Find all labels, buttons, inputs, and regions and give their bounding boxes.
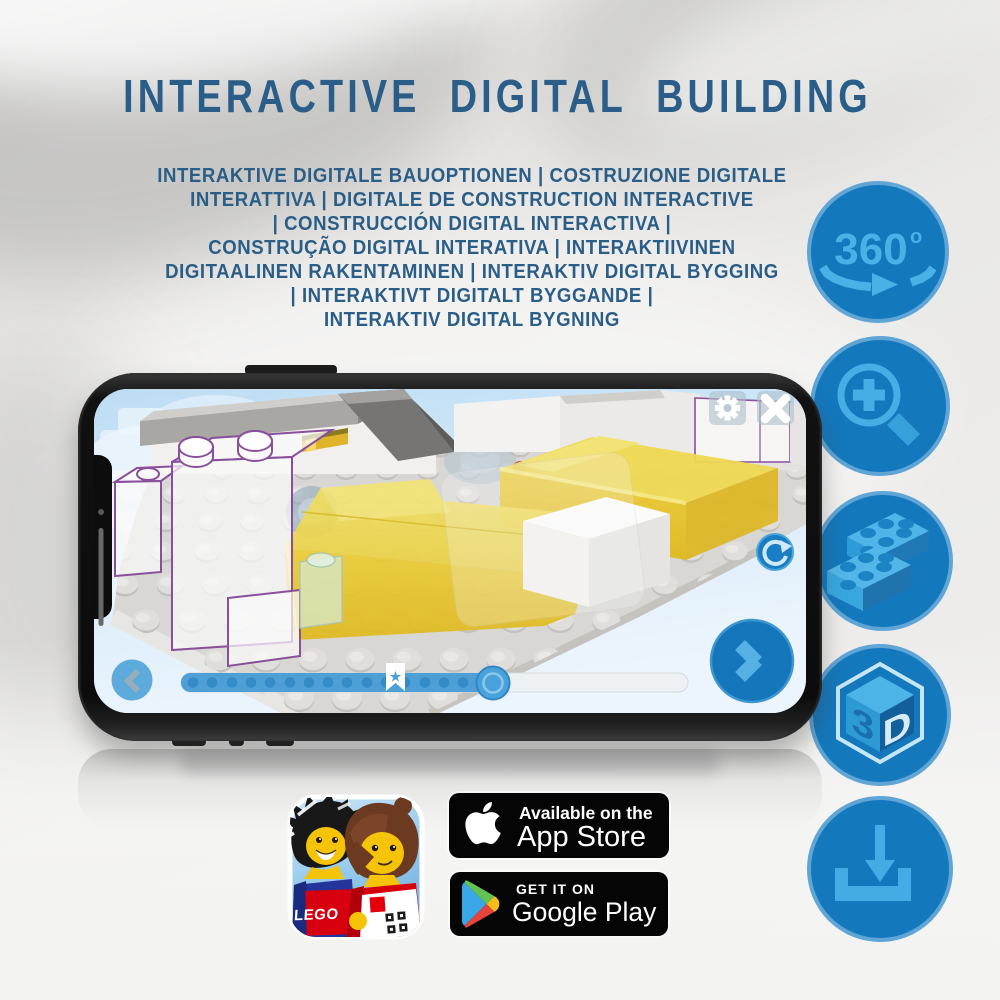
svg-text:GET IT ON: GET IT ON: [516, 881, 595, 897]
svg-text:★: ★: [390, 669, 402, 684]
svg-text:360: 360: [834, 225, 907, 274]
svg-text:App Store: App Store: [517, 821, 646, 853]
svg-text:Available on the: Available on the: [519, 803, 653, 823]
svg-text:Google Play: Google Play: [512, 897, 657, 927]
svg-text:LEGO: LEGO: [293, 906, 339, 925]
svg-text:o: o: [910, 226, 922, 248]
